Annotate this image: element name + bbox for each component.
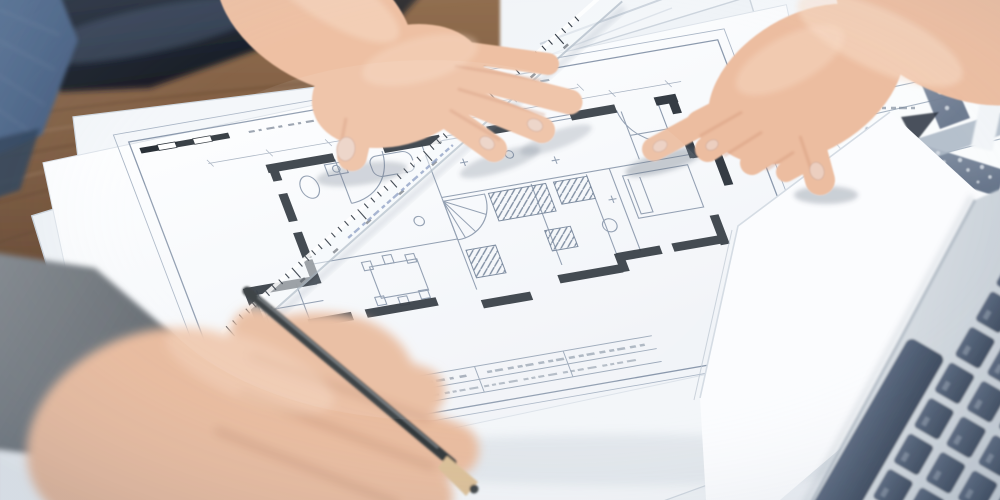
vignette [0, 0, 1000, 500]
photo-architects-floorplan: Photograph: three hands over an architec… [0, 0, 1000, 500]
photo-canvas [0, 0, 1000, 500]
